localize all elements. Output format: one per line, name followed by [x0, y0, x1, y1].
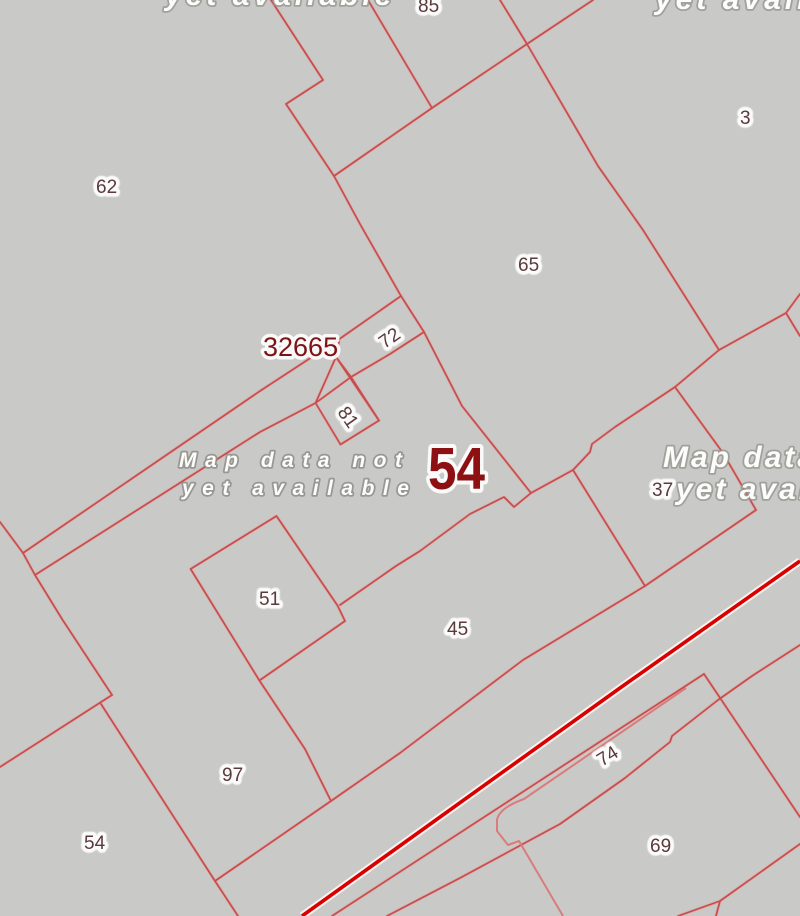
svg-text:69: 69 — [650, 836, 671, 857]
svg-text:yet avail: yet avail — [674, 473, 800, 506]
svg-text:32665: 32665 — [263, 332, 338, 362]
svg-text:Map data: Map data — [663, 441, 800, 474]
svg-text:Map data not: Map data not — [179, 449, 411, 472]
svg-text:yet avail: yet avail — [653, 0, 800, 16]
svg-text:85: 85 — [418, 0, 439, 17]
svg-text:3: 3 — [740, 108, 751, 129]
svg-text:yet available: yet available — [181, 477, 417, 500]
svg-text:65: 65 — [518, 255, 539, 276]
svg-text:37: 37 — [652, 480, 673, 501]
svg-text:54: 54 — [428, 436, 485, 502]
svg-text:54: 54 — [84, 833, 106, 854]
svg-text:yet available: yet available — [163, 0, 395, 12]
svg-text:45: 45 — [447, 619, 468, 640]
svg-text:97: 97 — [222, 765, 243, 786]
svg-text:51: 51 — [259, 589, 280, 610]
svg-text:62: 62 — [96, 177, 117, 198]
